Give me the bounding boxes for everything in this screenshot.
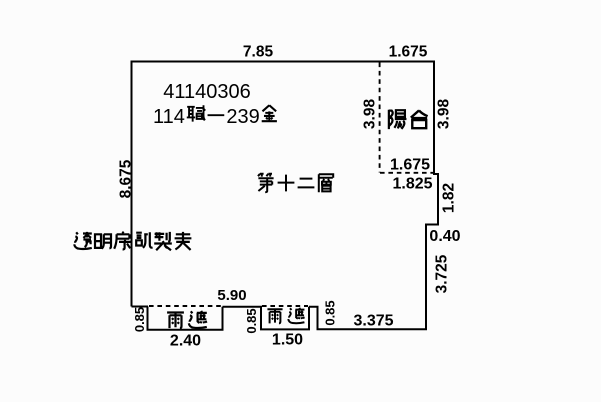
svg-text:1.825: 1.825: [392, 176, 432, 193]
svg-text:239: 239: [226, 106, 259, 128]
svg-text:5.90: 5.90: [217, 287, 246, 304]
svg-text:0.40: 0.40: [429, 228, 460, 245]
svg-text:1.675: 1.675: [389, 44, 428, 61]
svg-text:0.85: 0.85: [244, 308, 259, 333]
svg-text:8.675: 8.675: [117, 159, 134, 198]
svg-text:114: 114: [153, 106, 185, 128]
svg-text:0.85: 0.85: [132, 307, 147, 332]
svg-text:1.82: 1.82: [441, 183, 458, 213]
svg-text:41140306: 41140306: [163, 81, 251, 103]
svg-text:3.725: 3.725: [434, 254, 451, 293]
svg-text:0.85: 0.85: [323, 300, 338, 325]
svg-text:7.85: 7.85: [243, 44, 274, 61]
svg-text:3.98: 3.98: [436, 99, 453, 130]
svg-text:3.98: 3.98: [362, 99, 379, 130]
svg-text:1.50: 1.50: [272, 332, 303, 349]
svg-text:1.675: 1.675: [390, 157, 430, 174]
svg-text:2.40: 2.40: [170, 333, 201, 350]
svg-text:3.375: 3.375: [353, 313, 393, 330]
